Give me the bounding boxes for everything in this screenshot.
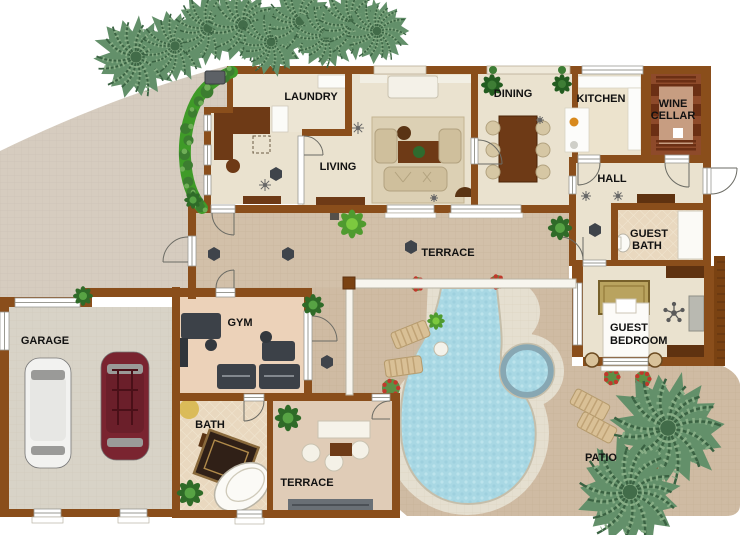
svg-text:BATH: BATH — [195, 419, 225, 431]
svg-text:PATIO: PATIO — [585, 452, 617, 464]
svg-text:BATH: BATH — [632, 240, 662, 252]
svg-text:CELLAR: CELLAR — [651, 110, 696, 122]
svg-text:TERRACE: TERRACE — [280, 477, 333, 489]
svg-text:LAUNDRY: LAUNDRY — [284, 91, 338, 103]
svg-text:GARAGE: GARAGE — [21, 335, 69, 347]
svg-text:WINE: WINE — [659, 98, 688, 110]
svg-text:GUEST: GUEST — [610, 322, 648, 334]
svg-text:GUEST: GUEST — [630, 228, 668, 240]
svg-text:DINING: DINING — [494, 88, 533, 100]
svg-text:KITCHEN: KITCHEN — [577, 93, 626, 105]
svg-text:LIVING: LIVING — [320, 161, 357, 173]
svg-text:HALL: HALL — [597, 173, 627, 185]
svg-text:BEDROOM: BEDROOM — [610, 335, 667, 347]
svg-text:GYM: GYM — [227, 317, 252, 329]
svg-text:TERRACE: TERRACE — [421, 247, 474, 259]
